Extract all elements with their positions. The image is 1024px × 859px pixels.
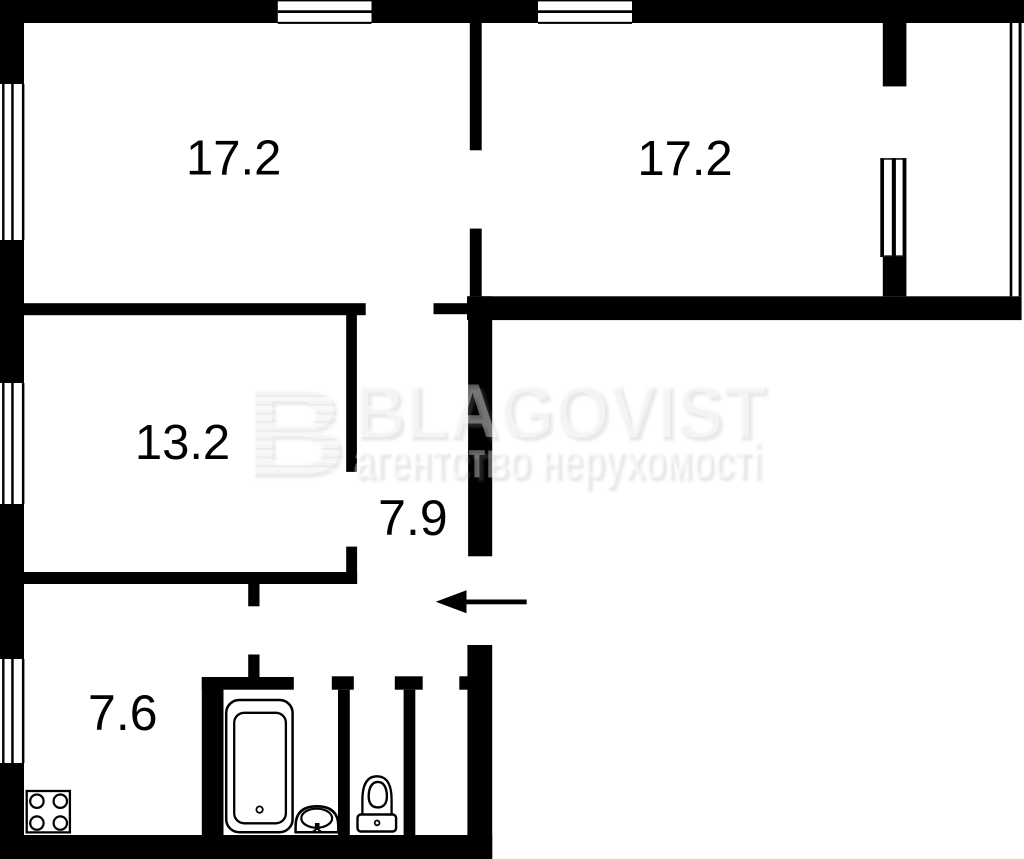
svg-text:агентство нерухомості: агентство нерухомості [354,431,761,488]
svg-text:7.9: 7.9 [378,490,448,546]
svg-text:13.2: 13.2 [135,416,230,470]
svg-text:7.6: 7.6 [88,685,158,741]
svg-text:17.2: 17.2 [186,132,281,186]
svg-text:B: B [242,361,346,502]
svg-text:17.2: 17.2 [637,132,732,186]
